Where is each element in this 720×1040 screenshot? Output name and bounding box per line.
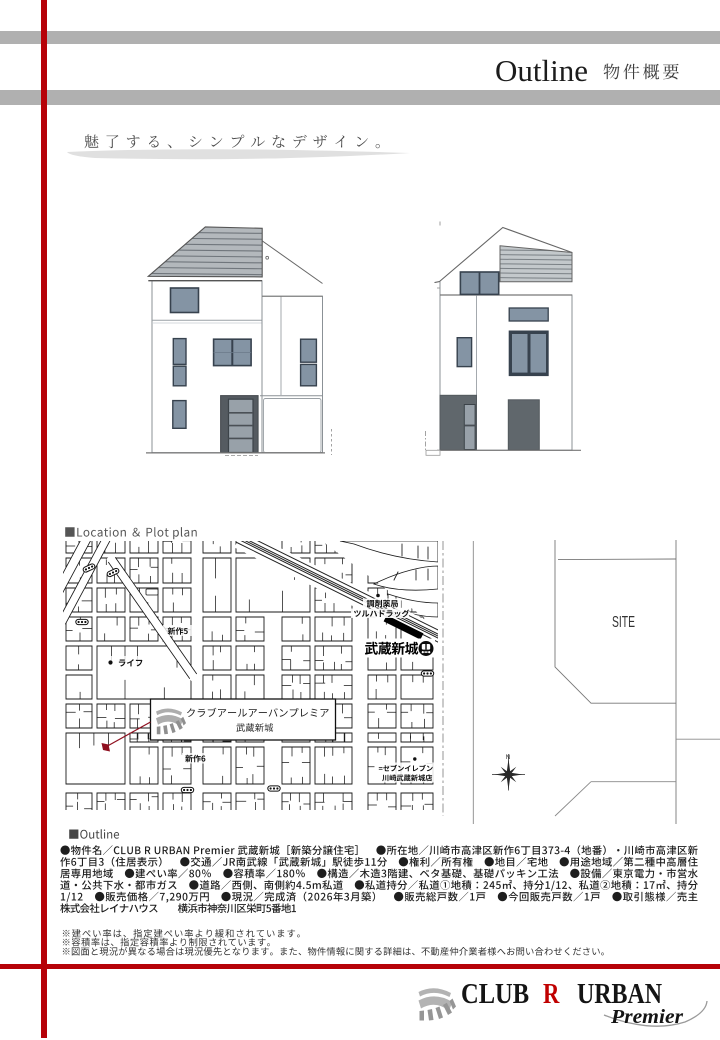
svg-text:N: N bbox=[506, 755, 510, 761]
svg-text:SITE: SITE bbox=[612, 614, 635, 631]
